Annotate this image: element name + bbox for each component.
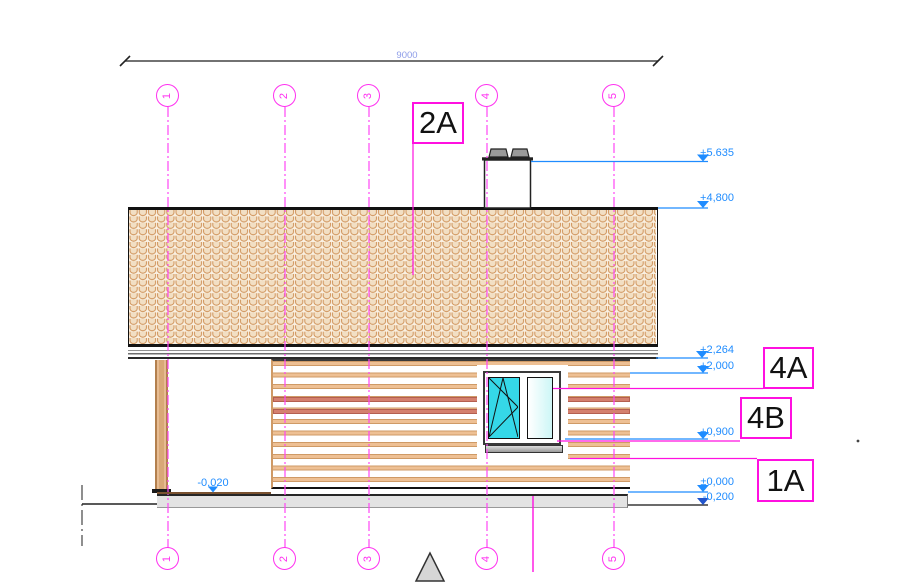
callout-facade-upper: 4A <box>763 347 814 389</box>
callout-plinth: 1A <box>757 459 814 502</box>
callout-facade-lower: 4B <box>740 397 792 439</box>
level-label-eaves: +2,264 <box>640 344 734 356</box>
grid-bubble-bottom-2: 2 <box>273 547 296 570</box>
chimney-cap-right <box>511 149 529 157</box>
level-label-floor: ±0,000 <box>640 476 734 488</box>
grid-bubble-top-5: 5 <box>602 84 625 107</box>
elevation-drawing: 9000 1 2 3 4 5 1 2 3 4 5 +5.635 +4,800 +… <box>0 0 899 587</box>
chimney-crown <box>482 157 533 160</box>
level-label-sill: +0,900 <box>640 426 734 438</box>
chimney-body <box>485 160 531 208</box>
grid-bubble-bottom-4: 4 <box>475 547 498 570</box>
grid-bubble-top-4: 4 <box>475 84 498 107</box>
callout-roof: 2A <box>412 102 464 144</box>
grid-bubble-top-3: 3 <box>357 84 380 107</box>
level-label-wall-top: +2,000 <box>640 360 734 372</box>
grid-bubble-bottom-5: 5 <box>602 547 625 570</box>
grid-bubble-bottom-1: 1 <box>156 547 179 570</box>
level-label-ground: -0,200 <box>640 491 734 503</box>
grid-bubble-top-2: 2 <box>273 84 296 107</box>
dimension-label: 9000 <box>380 50 434 61</box>
level-label-chimney-top: +5.635 <box>640 147 734 159</box>
grid-bubble-top-1: 1 <box>156 84 179 107</box>
section-triangle-marker <box>416 553 444 581</box>
level-label-porch-floor: -0,020 <box>193 477 233 489</box>
grid-bubble-bottom-3: 3 <box>357 547 380 570</box>
level-label-ridge: +4,800 <box>640 192 734 204</box>
chimney-cap-left <box>489 149 508 157</box>
stray-mark <box>857 440 860 443</box>
